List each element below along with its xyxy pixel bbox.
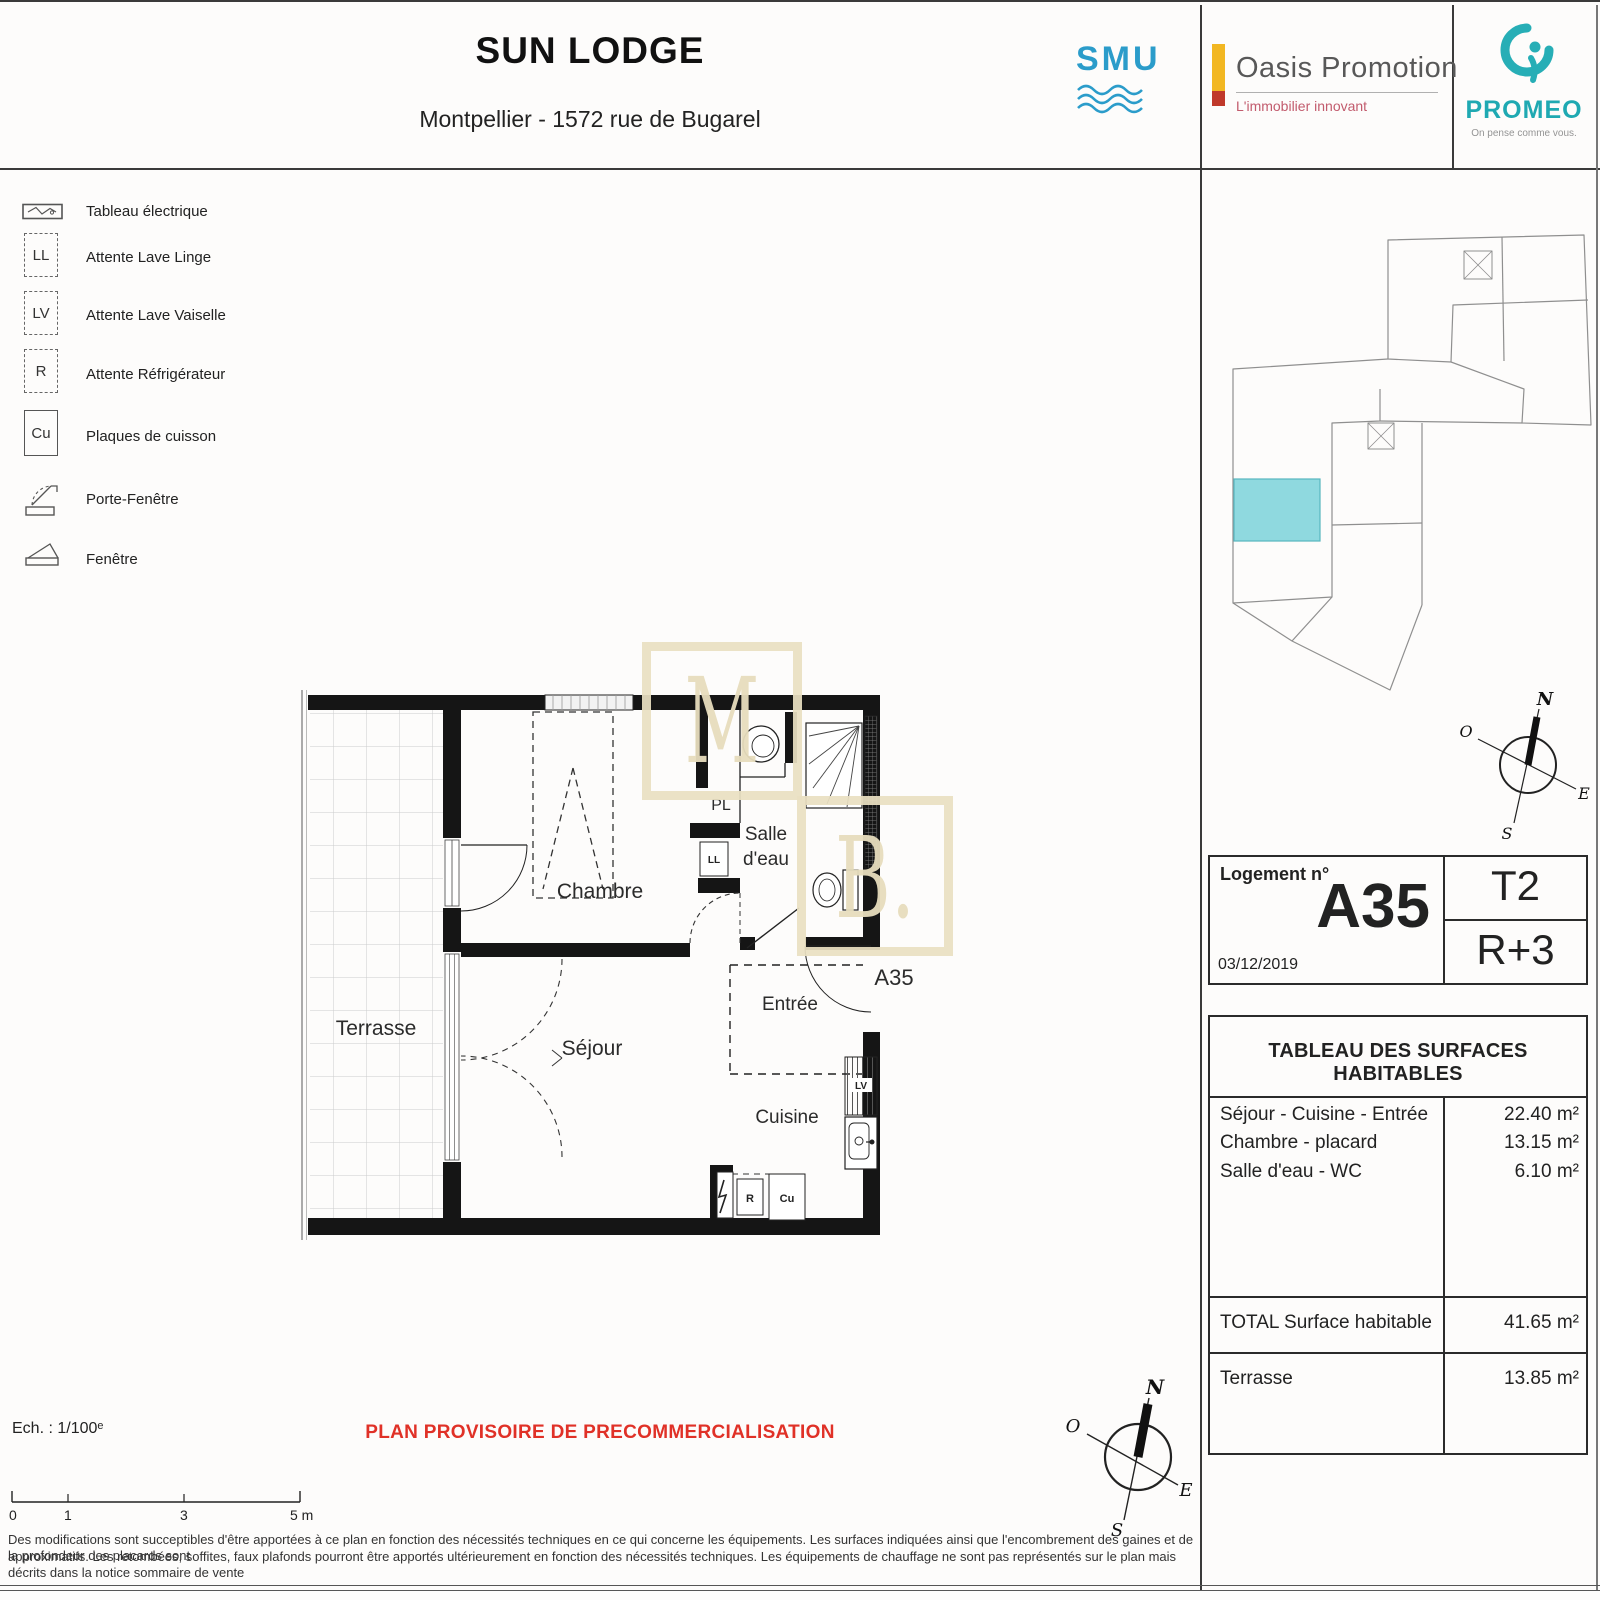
legend-box-r-label: R [36, 363, 47, 380]
label-chambre: Chambre [557, 880, 643, 903]
logo-divider [1452, 5, 1454, 168]
promeo-swirl-icon [1498, 20, 1556, 90]
legend-label-lave-linge: Attente Lave Linge [86, 249, 211, 266]
floor-plan-drawing: LL LV R Cu Terrasse [300, 680, 920, 1250]
cu-box: Cu [769, 1174, 805, 1220]
chambre-door-arc [690, 893, 740, 943]
compass-rose-main: N O E S [1045, 1368, 1205, 1548]
promeo-logo-name: PROMEO [1448, 96, 1600, 125]
smu-logo-text: SMU [1076, 40, 1161, 79]
salle-eau-door [747, 908, 799, 948]
oasis-logo-name: Oasis Promotion [1236, 52, 1458, 85]
oasis-logo-tagline: L'immobilier innovant [1236, 98, 1367, 114]
ll-box: LL [700, 842, 728, 876]
compass-rose-panel: N O E S [1442, 675, 1600, 855]
r-box: R [737, 1179, 763, 1215]
electrical-panel-icon [22, 203, 64, 221]
surface-row-label-2: Chambre - placard [1220, 1132, 1377, 1154]
smu-waves-icon [1076, 84, 1150, 120]
floor-plan-sheet: SUN LODGE Montpellier - 1572 rue de Buga… [0, 0, 1600, 1600]
watermark-letter-b: B. [821, 806, 930, 952]
highlighted-unit [1234, 479, 1320, 541]
scale-label: Ech. : 1/100ᵉ [12, 1420, 103, 1438]
header-bottom-border [0, 168, 1600, 170]
legend-box-cu: Cu [24, 410, 58, 456]
oasis-logo-bar-red [1212, 91, 1225, 106]
surface-terrace-label: Terrasse [1220, 1368, 1293, 1390]
compass-panel-s: S [1502, 824, 1513, 843]
disclaimer-line-2: approximatifs. Les retombées, soffites, … [8, 1549, 1196, 1581]
legend-box-cu-label: Cu [31, 425, 50, 442]
chambre-terrace-door [445, 840, 527, 911]
oasis-logo-underline [1236, 92, 1438, 93]
svg-text:LV: LV [855, 1081, 867, 1092]
fenetre-icon [24, 540, 64, 568]
promeo-logo-tagline: On pense comme vous. [1448, 128, 1600, 139]
surface-terrace-top-border [1208, 1352, 1588, 1354]
surface-total-value: 41.65 m² [1455, 1312, 1579, 1334]
page-top-border [0, 0, 1600, 2]
label-salle-eau-1: Salle [745, 824, 787, 845]
legend-box-lv: LV [24, 291, 58, 335]
legend-box-ll: LL [24, 233, 58, 277]
compass-main-n: N [1145, 1375, 1165, 1399]
top-window [545, 695, 633, 710]
unit-date: 03/12/2019 [1218, 956, 1298, 974]
surface-terrace-value: 13.85 m² [1455, 1368, 1579, 1390]
scale-tick-5: 5 m [290, 1507, 313, 1523]
legend-box-lv-label: LV [32, 305, 49, 322]
page-bottom-border [0, 1585, 1600, 1591]
porte-fenetre-icon [24, 478, 64, 518]
unit-type: T2 [1445, 862, 1586, 910]
compass-panel-o: O [1459, 722, 1472, 741]
terrace-tiles [310, 710, 443, 1218]
surface-row-value-1: 22.40 m² [1455, 1104, 1579, 1126]
label-sejour: Séjour [562, 1037, 623, 1060]
legend-label-porte-fenetre: Porte-Fenêtre [86, 491, 179, 508]
sink-icon [845, 1117, 877, 1169]
legend-label-tableau-electrique: Tableau électrique [86, 203, 208, 220]
provisional-plan-notice: PLAN PROVISOIRE DE PRECOMMERCIALISATION [300, 1422, 900, 1444]
unit-number: A35 [1250, 876, 1430, 938]
legend-label-fenetre: Fenêtre [86, 551, 138, 568]
project-title: SUN LODGE [300, 30, 880, 72]
compass-panel-n: N [1536, 689, 1555, 710]
scale-tick-3: 3 [180, 1507, 188, 1523]
surface-table-vdivider [1443, 1096, 1445, 1455]
surface-row-label-3: Salle d'eau - WC [1220, 1161, 1362, 1183]
legend-box-ll-label: LL [33, 247, 50, 264]
label-terrasse: Terrasse [336, 1017, 417, 1040]
oasis-logo-bar-yellow [1212, 44, 1225, 91]
legend-box-r: R [24, 349, 58, 393]
unit-box-hdivider [1445, 919, 1586, 921]
entree-dashed-outline [730, 965, 863, 1074]
surface-table-title: TABLEAU DES SURFACES HABITABLES [1208, 1040, 1588, 1086]
label-salle-eau-2: d'eau [743, 849, 789, 870]
surface-row-value-3: 6.10 m² [1455, 1161, 1579, 1183]
legend-label-lave-vaiselle: Attente Lave Vaiselle [86, 307, 226, 324]
scale-tick-1: 1 [64, 1507, 72, 1523]
label-cuisine: Cuisine [755, 1107, 818, 1128]
unit-floor: R+3 [1445, 926, 1586, 974]
svg-text:Cu: Cu [780, 1193, 795, 1205]
surface-row-value-2: 13.15 m² [1455, 1132, 1579, 1154]
compass-panel-e: E [1577, 784, 1590, 803]
electrical-panel-symbol [717, 1172, 733, 1218]
wardrobe-symbol [533, 712, 613, 898]
legend-label-plaques-cuisson: Plaques de cuisson [86, 428, 216, 445]
surface-total-top-border [1208, 1296, 1588, 1298]
scale-tick-0: 0 [9, 1507, 17, 1523]
scale-bar: 0 1 3 5 m [8, 1488, 318, 1532]
svg-text:LL: LL [708, 855, 720, 866]
label-entree: Entrée [762, 994, 818, 1015]
label-unit-number: A35 [874, 965, 913, 990]
surface-table-title-border [1208, 1096, 1588, 1098]
surface-row-label-1: Séjour - Cuisine - Entrée [1220, 1104, 1428, 1126]
compass-main-e: E [1178, 1480, 1192, 1501]
compass-main-o: O [1066, 1416, 1081, 1437]
lv-box: LV [845, 1057, 877, 1115]
project-address: Montpellier - 1572 rue de Bugarel [300, 106, 880, 133]
legend-label-refrigerateur: Attente Réfrigérateur [86, 366, 225, 383]
svg-text:R: R [746, 1193, 754, 1205]
sejour-french-door [445, 954, 562, 1160]
surface-total-label: TOTAL Surface habitable [1220, 1312, 1432, 1334]
watermark-letter-m: M [671, 648, 773, 794]
